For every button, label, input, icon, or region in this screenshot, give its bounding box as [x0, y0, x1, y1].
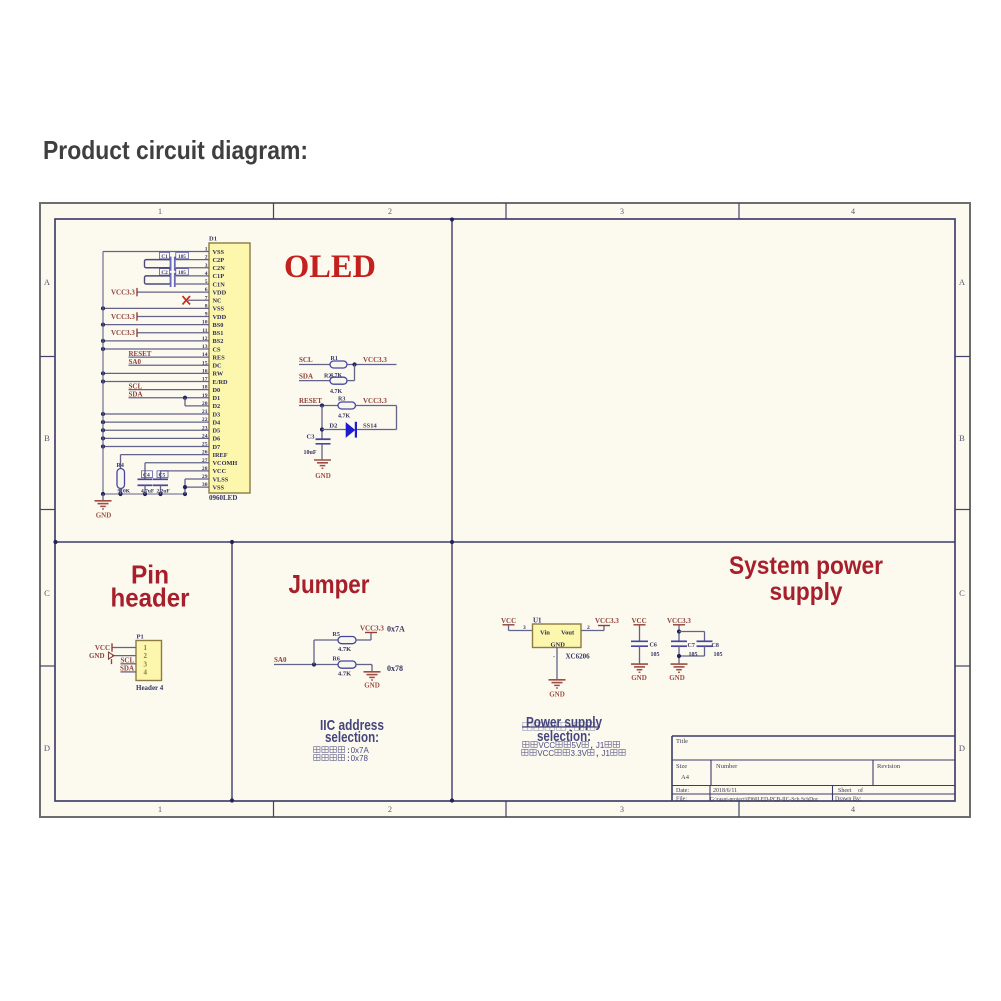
svg-text:J1: J1 [602, 749, 611, 758]
svg-text:D6: D6 [213, 436, 221, 443]
svg-text:VSS: VSS [213, 249, 225, 256]
svg-text:Drawn By:: Drawn By: [835, 797, 862, 803]
svg-text:D0: D0 [213, 387, 221, 394]
svg-text:File:: File: [676, 797, 687, 803]
svg-text:Vin: Vin [540, 629, 550, 636]
svg-text:selection:: selection: [325, 729, 379, 746]
svg-text:OLED: OLED [284, 249, 376, 285]
svg-text:BS2: BS2 [213, 338, 224, 345]
svg-text:Header 4: Header 4 [136, 684, 164, 692]
svg-text:G:\raspi-project\0960LED-PCB-I: G:\raspi-project\0960LED-PCB-IIC-Sch.Sch… [710, 797, 819, 803]
svg-text:3: 3 [620, 805, 624, 814]
svg-text:Date:: Date: [676, 788, 689, 794]
svg-text:Jumper: Jumper [289, 569, 370, 599]
svg-text:RESET: RESET [129, 350, 152, 358]
svg-text:A: A [959, 277, 966, 287]
svg-text:B: B [959, 433, 965, 443]
svg-text:R2: R2 [324, 373, 331, 379]
svg-text:GND: GND [364, 681, 380, 689]
svg-text:R6: R6 [333, 656, 340, 662]
svg-text:BS0: BS0 [213, 322, 224, 329]
svg-text:GND: GND [89, 652, 105, 660]
svg-text:3.3V: 3.3V [571, 749, 588, 758]
svg-text:4.7K: 4.7K [330, 389, 343, 395]
svg-text:VCC3.3: VCC3.3 [111, 313, 135, 321]
svg-text:SDA: SDA [129, 390, 143, 398]
svg-text:NC: NC [213, 298, 223, 305]
svg-text:0x7A: 0x7A [387, 625, 405, 634]
svg-text:3: 3 [523, 625, 526, 631]
svg-text:3: 3 [144, 660, 148, 668]
svg-text:1: 1 [158, 805, 162, 814]
svg-text:2: 2 [144, 652, 148, 660]
svg-text:4.7K: 4.7K [338, 646, 351, 653]
svg-text:105: 105 [714, 652, 723, 658]
svg-text:VCC3.3: VCC3.3 [111, 329, 135, 337]
svg-text:SDA: SDA [120, 665, 134, 673]
svg-text:RES: RES [213, 354, 226, 361]
svg-text:R1: R1 [331, 356, 338, 362]
svg-text:R3: R3 [338, 396, 345, 402]
svg-text:4.7K: 4.7K [338, 670, 351, 677]
svg-text:C: C [44, 588, 50, 598]
svg-text:Number: Number [716, 763, 738, 770]
svg-text:,: , [590, 741, 592, 750]
svg-text:A: A [44, 277, 51, 287]
svg-text:910K: 910K [118, 489, 131, 495]
svg-text:Sheet: Sheet [838, 788, 852, 794]
svg-text:VCC3.3: VCC3.3 [363, 356, 387, 364]
svg-text:E/RD: E/RD [213, 379, 228, 386]
svg-text:VCC3.3: VCC3.3 [360, 625, 384, 633]
svg-text:3: 3 [620, 207, 624, 216]
svg-text:P1: P1 [137, 634, 144, 641]
svg-text:105: 105 [689, 652, 698, 658]
svg-text:DC: DC [213, 363, 223, 370]
svg-text:C6: C6 [650, 643, 657, 649]
svg-text:R5: R5 [333, 632, 340, 638]
svg-text:BS1: BS1 [213, 330, 224, 337]
svg-text:4: 4 [851, 207, 855, 216]
svg-text:C8: C8 [712, 643, 719, 649]
svg-text::: : [347, 754, 350, 763]
svg-text:SA0: SA0 [129, 358, 142, 366]
svg-text:C2P: C2P [213, 257, 225, 264]
svg-text:1: 1 [158, 207, 162, 216]
svg-text:IREF: IREF [213, 452, 228, 459]
svg-text:VCOMH: VCOMH [213, 460, 238, 467]
svg-text:D3: D3 [213, 411, 221, 418]
svg-text:R4: R4 [117, 463, 124, 469]
svg-text:GND: GND [631, 674, 647, 682]
svg-text:of: of [858, 787, 863, 794]
svg-text:U1: U1 [533, 617, 542, 625]
svg-text:VCC3.3: VCC3.3 [667, 617, 691, 625]
svg-text:D: D [44, 743, 50, 753]
svg-text:Size: Size [676, 763, 687, 770]
svg-text:System power: System power [729, 552, 883, 580]
svg-text:VCC: VCC [95, 644, 110, 652]
svg-text:GND: GND [669, 674, 685, 682]
svg-text:VSS: VSS [213, 306, 225, 313]
svg-text:4.7K: 4.7K [338, 413, 351, 419]
svg-text:VDD: VDD [213, 289, 227, 296]
svg-text:0960LED: 0960LED [209, 494, 237, 502]
svg-text:VCC3.3: VCC3.3 [111, 288, 135, 296]
svg-text:Title: Title [676, 738, 688, 745]
svg-text:2.2uF: 2.2uF [157, 489, 171, 495]
svg-text:XC6206: XC6206 [566, 653, 591, 661]
svg-text:4.7uF: 4.7uF [141, 489, 155, 495]
svg-text:VCC: VCC [632, 617, 647, 625]
svg-text:VCC3.3: VCC3.3 [595, 617, 619, 625]
svg-text:D: D [959, 743, 965, 753]
svg-text:4: 4 [851, 805, 855, 814]
svg-text:C1N: C1N [213, 281, 226, 288]
svg-text:RW: RW [213, 371, 224, 378]
svg-text:D2: D2 [213, 403, 221, 410]
svg-text:C1P: C1P [213, 273, 225, 280]
svg-text:C2N: C2N [213, 265, 226, 272]
svg-text:VCC: VCC [537, 749, 554, 758]
svg-text:VCC: VCC [501, 617, 516, 625]
svg-text:VCC: VCC [213, 468, 227, 475]
svg-text:SCL: SCL [129, 382, 143, 390]
svg-text:10uF: 10uF [304, 450, 317, 456]
svg-text:GND: GND [315, 472, 331, 480]
svg-text:105: 105 [651, 652, 660, 658]
svg-text:Product circuit diagram:: Product circuit diagram: [43, 135, 308, 165]
svg-text:4: 4 [144, 669, 148, 677]
svg-text:CS: CS [213, 346, 222, 353]
svg-text:header: header [111, 583, 190, 613]
svg-text:C: C [959, 588, 965, 598]
svg-text:0x78: 0x78 [387, 664, 403, 673]
svg-text:,: , [596, 749, 598, 758]
svg-text:-: - [553, 654, 555, 660]
svg-text:VLSS: VLSS [213, 476, 229, 483]
svg-text:0x78: 0x78 [351, 754, 369, 763]
svg-text:D1: D1 [209, 236, 217, 243]
svg-text:D4: D4 [213, 419, 222, 426]
svg-text:GND: GND [549, 691, 565, 699]
svg-text:D7: D7 [213, 444, 221, 451]
svg-text:Vout: Vout [561, 629, 575, 636]
svg-text:SCL: SCL [121, 657, 135, 665]
svg-text:B: B [44, 433, 50, 443]
svg-text:GND: GND [551, 641, 566, 648]
svg-text:D1: D1 [213, 395, 221, 402]
svg-text:A4: A4 [681, 774, 690, 781]
svg-text:SCL: SCL [299, 356, 313, 364]
svg-text:RESET: RESET [299, 397, 322, 405]
svg-text:D5: D5 [213, 428, 221, 435]
svg-text:VSS: VSS [213, 484, 225, 491]
svg-text:Revision: Revision [877, 763, 901, 770]
svg-text:SA0: SA0 [274, 656, 287, 664]
svg-text:C7: C7 [688, 643, 695, 649]
svg-text:SDA: SDA [299, 372, 313, 380]
svg-text:D2: D2 [329, 423, 337, 430]
svg-text:VDD: VDD [213, 314, 227, 321]
svg-text:supply: supply [770, 578, 843, 606]
svg-text:2: 2 [388, 207, 392, 216]
svg-text:2: 2 [388, 805, 392, 814]
svg-text:SS14: SS14 [363, 423, 377, 430]
svg-text:GND: GND [96, 512, 112, 520]
svg-text:1: 1 [144, 644, 148, 652]
svg-text:2018/6/11: 2018/6/11 [713, 788, 737, 794]
svg-text:VCC3.3: VCC3.3 [363, 397, 387, 405]
svg-text:C3: C3 [307, 434, 316, 441]
